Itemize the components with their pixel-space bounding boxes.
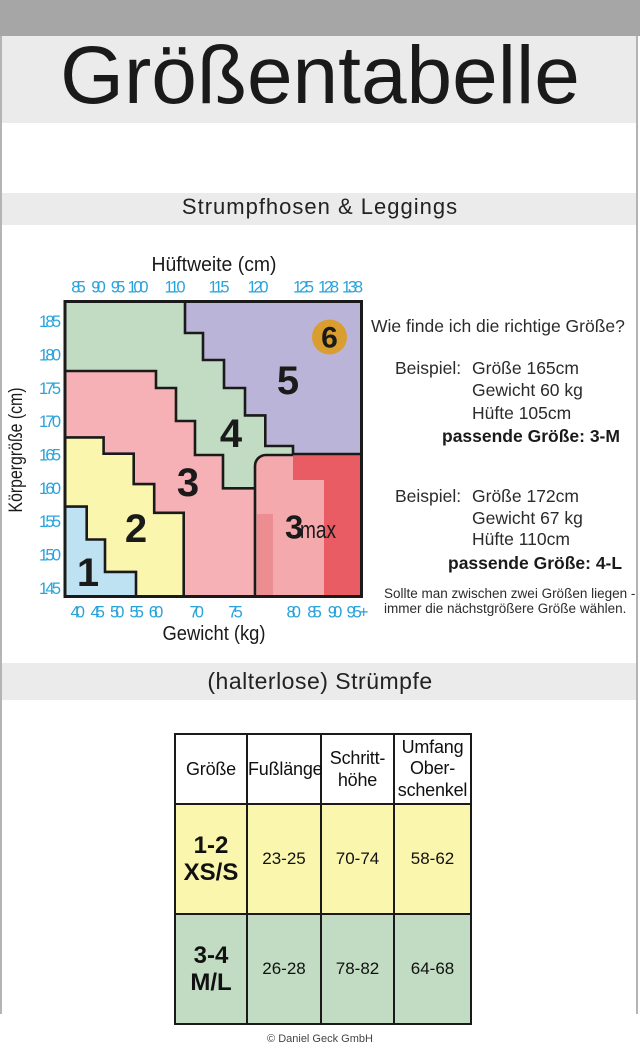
svg-text:70: 70 <box>189 604 204 622</box>
svg-text:110: 110 <box>165 279 186 297</box>
svg-text:85: 85 <box>307 604 322 622</box>
svg-text:5: 5 <box>277 359 299 403</box>
svg-text:4: 4 <box>220 412 243 456</box>
svg-text:45: 45 <box>90 604 105 622</box>
svg-text:85: 85 <box>71 279 86 297</box>
svg-text:Gewicht (kg): Gewicht (kg) <box>163 623 266 645</box>
svg-text:2: 2 <box>125 507 147 551</box>
svg-text:95+: 95+ <box>347 604 369 622</box>
svg-text:120: 120 <box>248 279 269 297</box>
svg-text:50: 50 <box>110 604 125 622</box>
svg-text:95: 95 <box>111 279 126 297</box>
svg-text:90: 90 <box>328 604 343 622</box>
svg-text:75: 75 <box>228 604 243 622</box>
svg-text:40: 40 <box>70 604 85 622</box>
svg-text:125: 125 <box>293 279 314 297</box>
svg-text:115: 115 <box>209 279 230 297</box>
svg-text:145: 145 <box>39 580 61 598</box>
svg-text:80: 80 <box>286 604 301 622</box>
svg-text:6: 6 <box>321 322 338 355</box>
svg-text:3: 3 <box>177 461 199 505</box>
svg-text:175: 175 <box>39 380 61 398</box>
svg-text:160: 160 <box>39 480 61 498</box>
svg-text:180: 180 <box>39 347 61 365</box>
svg-text:Hüftweite (cm): Hüftweite (cm) <box>152 254 277 276</box>
svg-text:165: 165 <box>39 447 61 465</box>
svg-text:128: 128 <box>318 279 339 297</box>
svg-text:55: 55 <box>129 604 144 622</box>
svg-text:90: 90 <box>91 279 106 297</box>
svg-text:60: 60 <box>149 604 164 622</box>
svg-text:138: 138 <box>342 279 363 297</box>
svg-text:100: 100 <box>128 279 149 297</box>
svg-text:170: 170 <box>39 413 61 431</box>
svg-text:150: 150 <box>39 547 61 565</box>
svg-text:185: 185 <box>39 313 61 331</box>
svg-text:Körpergröße (cm): Körpergröße (cm) <box>6 388 27 513</box>
svg-text:1: 1 <box>77 551 99 595</box>
svg-text:max: max <box>300 517 336 544</box>
svg-text:155: 155 <box>39 513 61 531</box>
